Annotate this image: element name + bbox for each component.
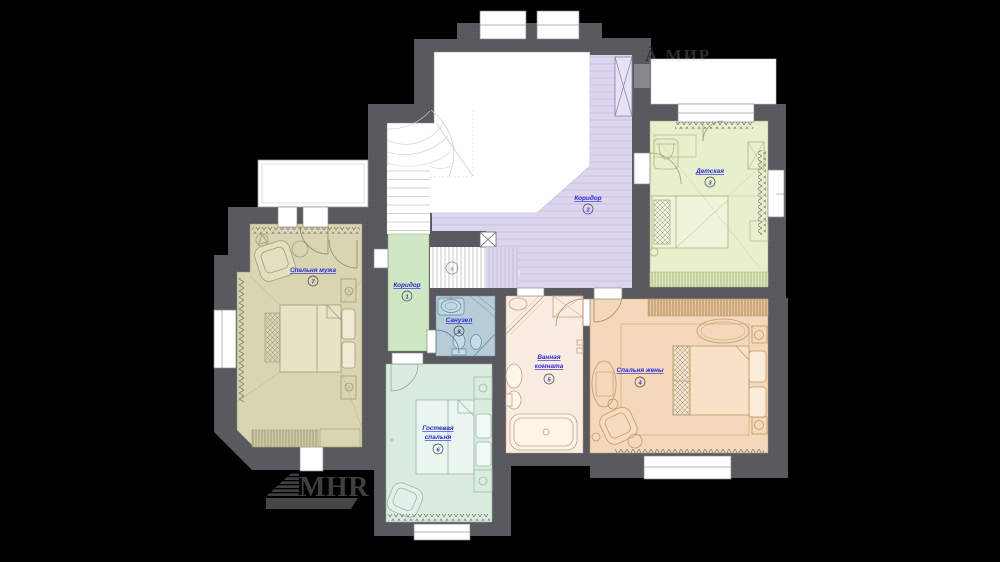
svg-text:Санузел: Санузел [446, 317, 473, 324]
svg-text:комната: комната [535, 363, 564, 370]
svg-text:1: 1 [405, 295, 408, 301]
svg-text:a: a [451, 267, 454, 273]
svg-text:Коридор: Коридор [574, 194, 601, 202]
svg-text:спальня: спальня [425, 434, 452, 441]
svg-text:Спальня жены: Спальня жены [617, 367, 664, 374]
svg-text:Коридор: Коридор [393, 281, 420, 289]
svg-text:Спальня мужа: Спальня мужа [290, 267, 336, 274]
svg-text:Детская: Детская [695, 168, 724, 175]
svg-text:Гостевая: Гостевая [422, 425, 454, 432]
svg-text:Ванная: Ванная [537, 354, 560, 361]
